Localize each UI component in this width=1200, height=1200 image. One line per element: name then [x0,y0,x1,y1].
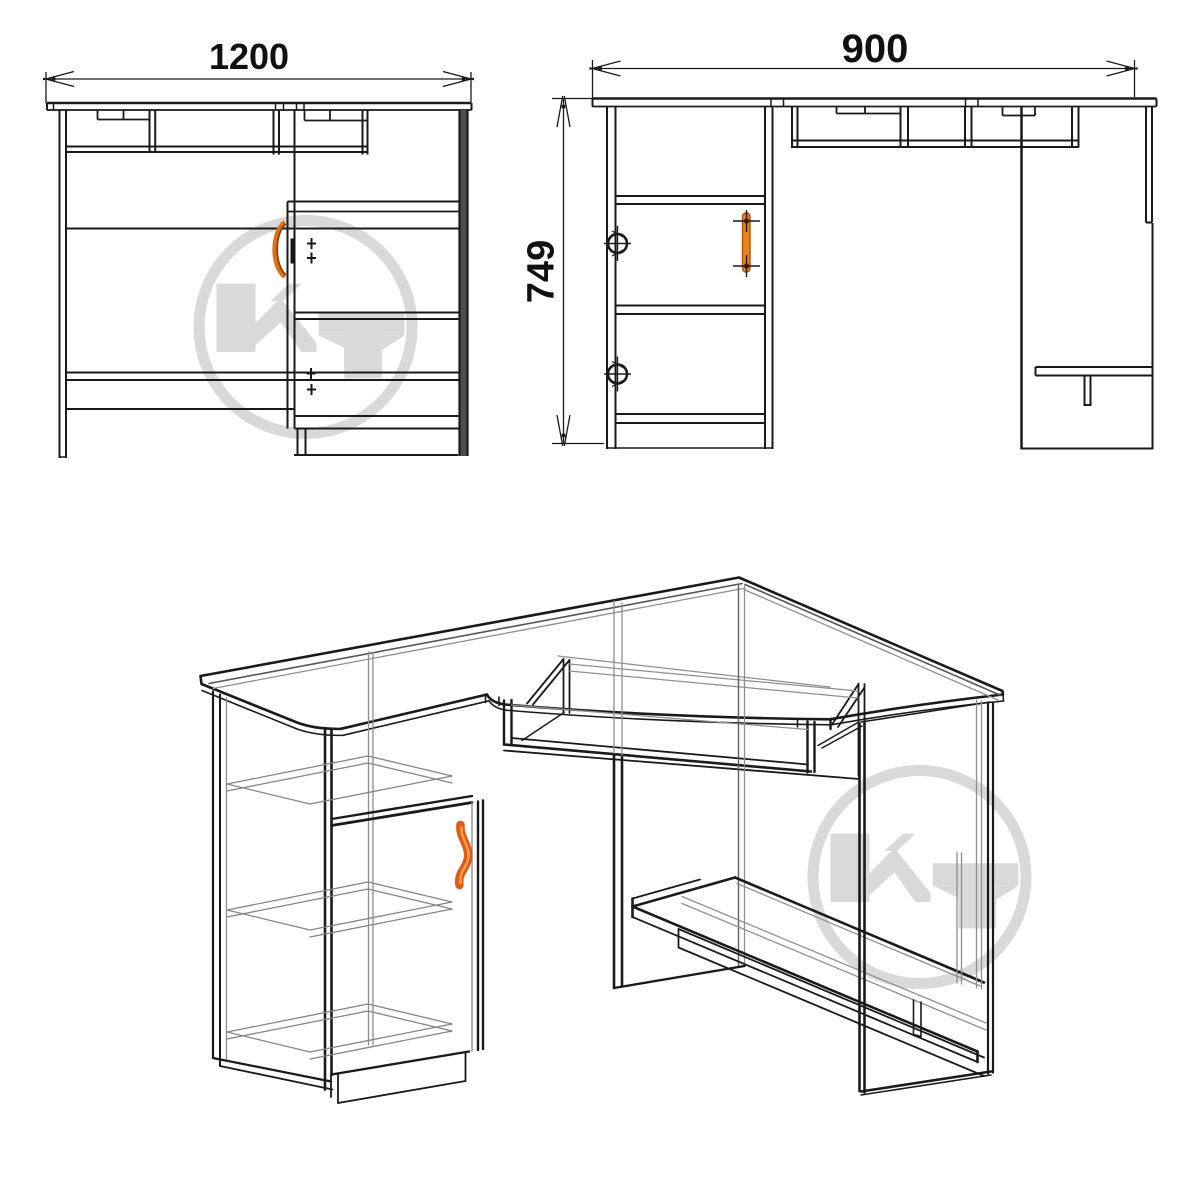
svg-text:900: 900 [842,27,909,71]
svg-text:1200: 1200 [209,36,289,77]
svg-text:749: 749 [521,240,563,303]
